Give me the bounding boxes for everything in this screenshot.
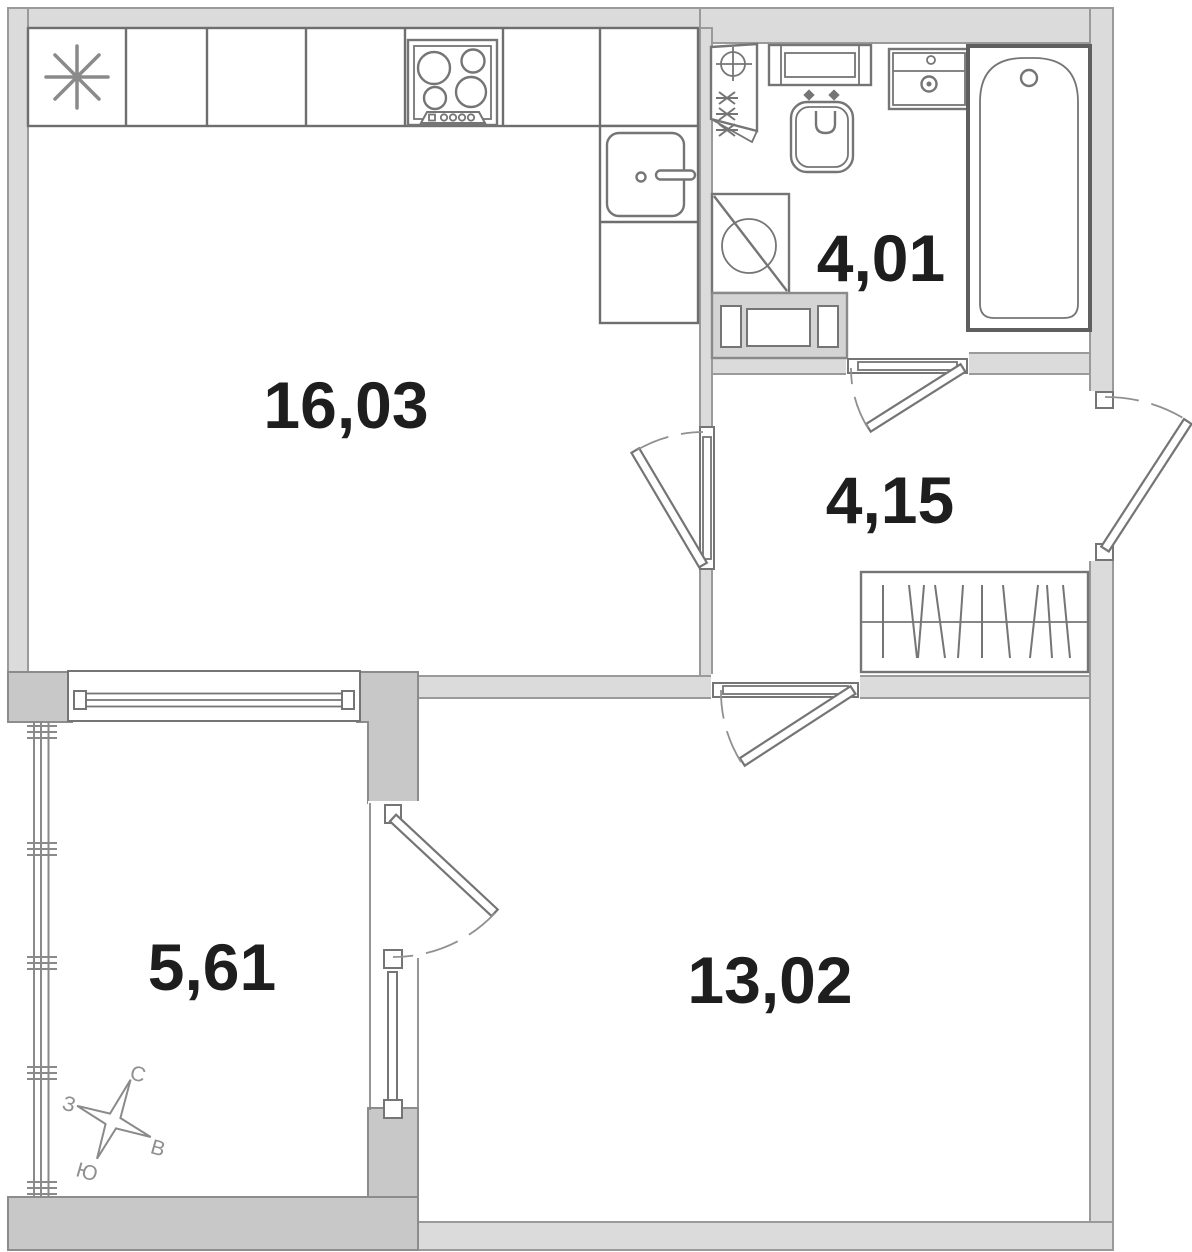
wall-bottom [418,1222,1113,1250]
window-kitchen-balcony [68,671,360,721]
floor-plan: 16,03 4,01 4,15 13,02 5,61 С З В Ю [0,0,1192,1252]
wall-left [8,8,28,672]
wardrobe-icon [861,572,1088,672]
room-label-kitchen-living: 16,03 [263,368,428,442]
wall-kitchen-divider [700,28,712,685]
kitchen-sink-icon [607,133,695,216]
wall-right-upper [1090,8,1113,395]
wall-top-bathroom [700,8,1113,43]
vent-shaft [712,293,847,358]
wall-balcony-bottom [8,1197,418,1250]
fridge-asterisk-icon [46,46,108,108]
vanity-sink-icon [889,49,969,109]
room-label-room: 13,02 [687,943,852,1017]
room-label-bathroom: 4,01 [817,221,945,295]
room-label-hallway: 4,15 [826,463,954,537]
bathtub-icon [968,46,1090,330]
stove-icon [408,40,497,125]
washing-machine-icon [712,194,789,293]
room-label-balcony: 5,61 [148,930,276,1004]
wall-right-lower [1090,557,1113,1250]
wall-balcony-corner-left [8,672,72,722]
